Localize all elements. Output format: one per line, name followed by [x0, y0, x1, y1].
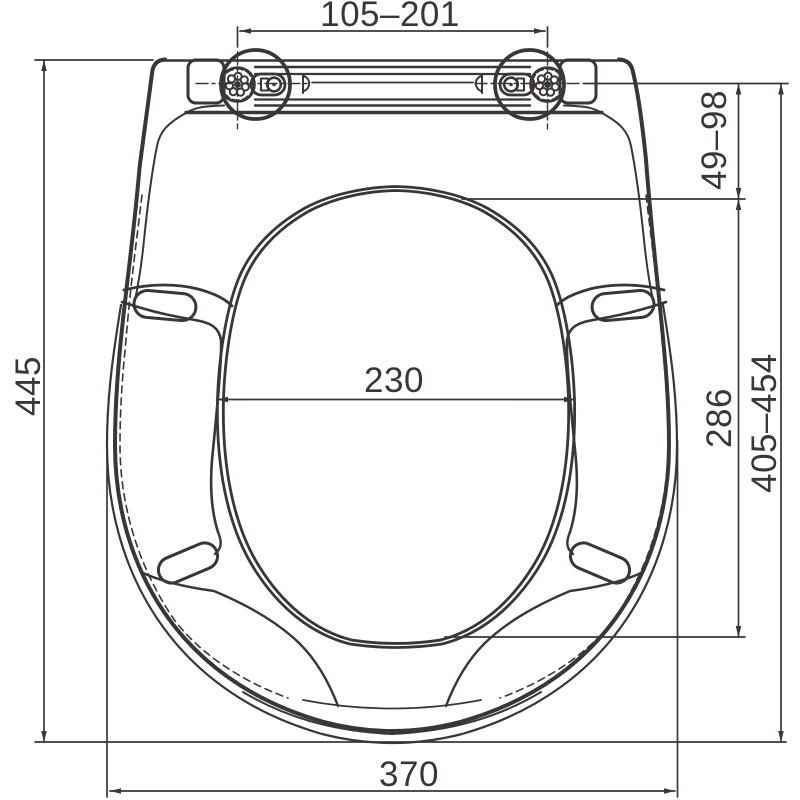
- svg-text:445: 445: [9, 356, 48, 416]
- svg-text:230: 230: [364, 361, 424, 400]
- svg-text:105–201: 105–201: [320, 0, 460, 34]
- svg-text:49–98: 49–98: [695, 90, 734, 190]
- svg-text:370: 370: [379, 755, 439, 794]
- svg-text:286: 286: [700, 388, 739, 448]
- svg-text:405–454: 405–454: [745, 353, 784, 493]
